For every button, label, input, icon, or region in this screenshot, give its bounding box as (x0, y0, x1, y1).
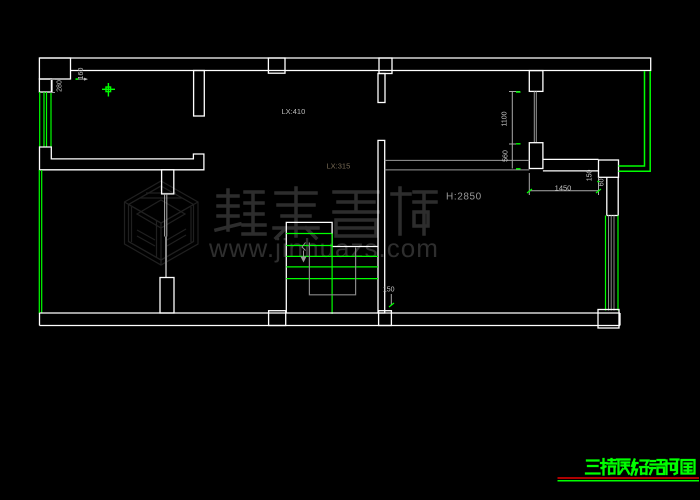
svg-text:www.jinhuazs.com: www.jinhuazs.com (208, 233, 439, 263)
svg-text:LX:410: LX:410 (282, 107, 306, 116)
svg-text:1100: 1100 (502, 111, 509, 126)
svg-text:160: 160 (78, 68, 85, 80)
svg-text:LX:315: LX:315 (327, 162, 351, 171)
svg-text:560: 560 (503, 150, 510, 162)
svg-text:1450: 1450 (555, 184, 572, 193)
svg-text:150: 150 (587, 169, 594, 181)
svg-text:60: 60 (599, 178, 606, 186)
svg-text:280: 280 (57, 80, 64, 92)
svg-text:H:2850: H:2850 (446, 192, 482, 203)
svg-text:150: 150 (383, 287, 395, 294)
